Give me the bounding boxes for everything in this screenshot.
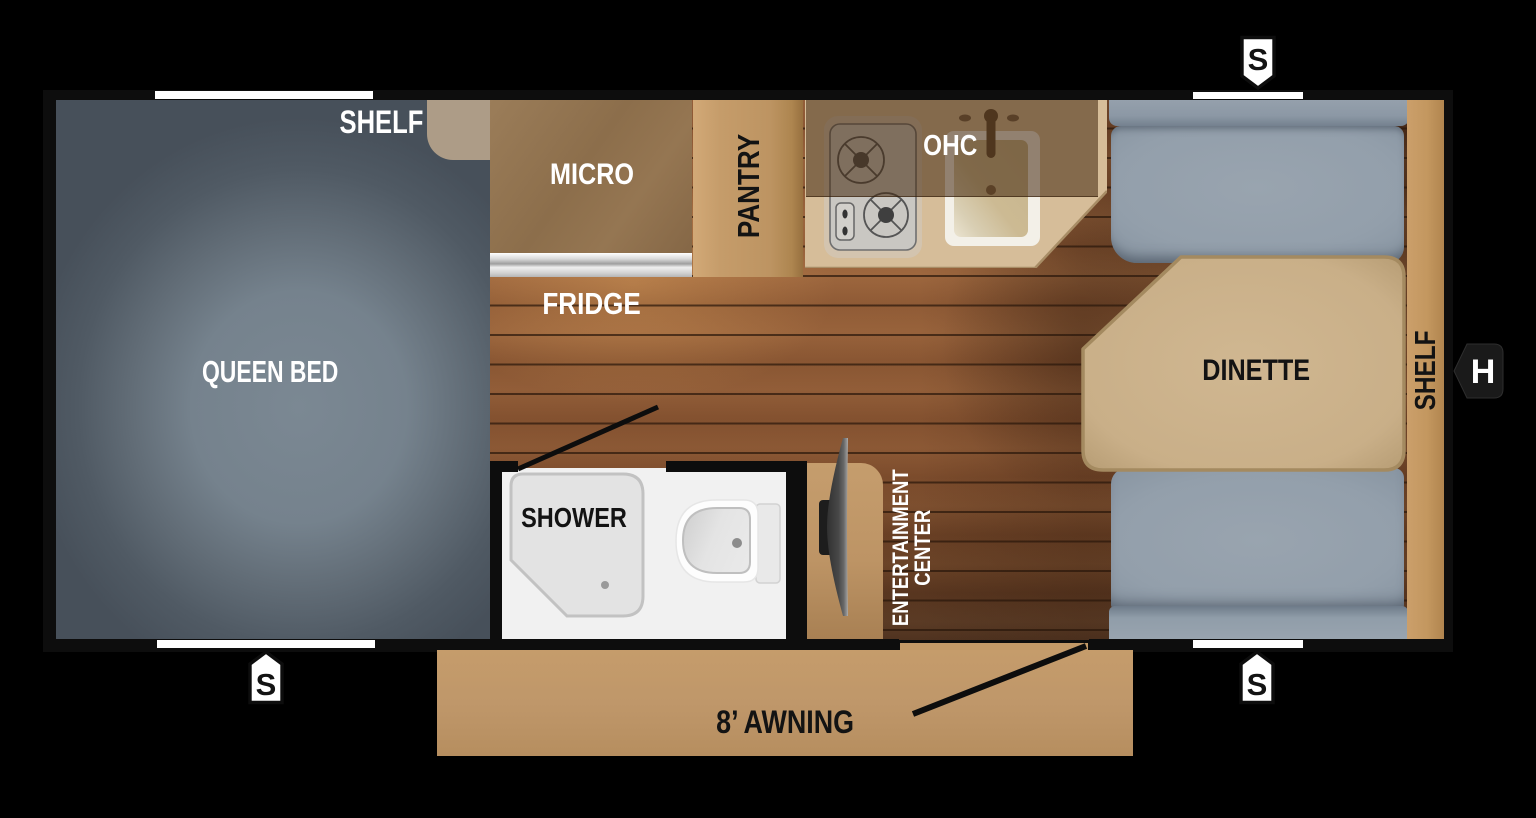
svg-text:S: S — [1248, 42, 1269, 77]
svg-text:H: H — [1471, 353, 1496, 391]
svg-text:S: S — [256, 667, 277, 702]
svg-text:S: S — [1247, 667, 1268, 702]
